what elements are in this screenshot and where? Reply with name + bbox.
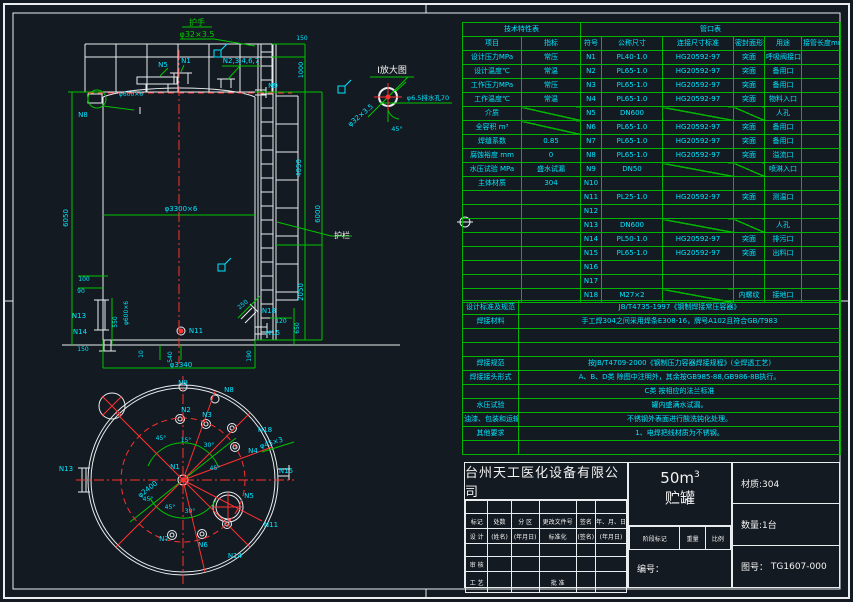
label-150: 150 <box>296 35 308 42</box>
requirement-row <box>463 329 841 343</box>
label-4050: 4050 <box>295 159 303 177</box>
label-1000: 1000 <box>297 62 305 79</box>
label-6000: 6000 <box>314 205 322 223</box>
label-150: 150 <box>77 346 89 353</box>
serial-label: 编号： <box>629 550 731 587</box>
nozzle-row-N11: N11PL25-1.0HG20592-97突面测温口 <box>463 191 841 205</box>
company-name: 台州天工医化设备有限公司 <box>465 463 627 499</box>
label-45°: 45° <box>143 496 154 503</box>
label-45°: 45° <box>156 435 167 442</box>
label-φ3340: φ3340 <box>170 361 192 369</box>
nozzle-n8 <box>88 94 102 103</box>
label-N11: N11 <box>189 327 203 335</box>
tank-elevation-view <box>62 44 400 351</box>
label-2050: 2050 <box>297 283 305 301</box>
label-N14: N14 <box>73 328 88 336</box>
label-φ32×3.5: φ32×3.5 <box>180 30 215 39</box>
requirement-row: 焊接规范按JB/T4709-2000《钢制压力容器焊接规程》(全焊透工艺) <box>463 357 841 371</box>
requirement-row: 其他要求1、电焊把线材质为不锈钢。 <box>463 427 841 441</box>
drawing-number: 图号： TG1607-000 <box>733 546 839 587</box>
label-N4: N4 <box>248 447 258 455</box>
label-Ⅰ放大图: Ⅰ放大图 <box>377 64 407 76</box>
stage-weight-scale-row: 阶段标记重量比例 <box>628 526 732 550</box>
nozzle-row-N5: 介质N5DN600人孔 <box>463 107 841 121</box>
nozzle-row-N10: 主体材质304N10 <box>463 177 841 191</box>
nozzle-row-N3: 工作压力MPa常压N3PL65-1.0HG20592-97突面备用口 <box>463 79 841 93</box>
label-550: 550 <box>112 316 119 328</box>
label-250: 250 <box>236 298 249 311</box>
label-15°: 15° <box>181 437 192 444</box>
plan-nozzles <box>168 383 240 540</box>
cad-drawing-page: { "colors":{"line_green":"#00c400","text… <box>0 0 853 602</box>
label-φ32×3.5: φ32×3.5 <box>346 103 375 129</box>
requirement-row: 焊接接头形式A、B、D类 除图中注明外，其余按GB985-88,GB986-8B… <box>463 371 841 385</box>
label-N5: N5 <box>244 492 254 500</box>
label-10: 10 <box>138 350 145 358</box>
nozzle-row-N12: N12 <box>463 205 841 219</box>
ladder-cage <box>276 96 298 300</box>
requirement-row: 水压试验罐内盛满水试漏。 <box>463 399 841 413</box>
nozzle-row-N15: N15PL65-1.0HG20592-97突面出料口 <box>463 247 841 261</box>
label-45°: 45° <box>210 465 221 472</box>
nozzle-row-N9: 水压试验 MPa盛水试漏N9DN50喷淋入口 <box>463 163 841 177</box>
label-120: 120 <box>275 318 287 325</box>
revision-signature-grid: 标记处数分 区更改文件号签名年、月、日设 计(姓名)(年月日)标准化(签名)(年… <box>464 500 628 588</box>
label-N8: N8 <box>78 111 88 119</box>
label-650: 650 <box>294 322 301 334</box>
nozzle-table-title: 管口表 <box>581 23 841 37</box>
nozzle-row-N4: 工作温度℃常温N4PL65-1.0HG20592-97突面物料入口 <box>463 93 841 107</box>
label-N13: N13 <box>72 312 86 320</box>
label-护手: 护手 <box>189 17 205 27</box>
nozzle-row-N14: N14PL50-1.0HG20592-97突面排污口 <box>463 233 841 247</box>
nozzle-row-N16: N16 <box>463 261 841 275</box>
label-N2: N2 <box>181 406 191 414</box>
label-N18: N18 <box>258 426 272 434</box>
requirement-row <box>463 343 841 357</box>
label-45°: 45° <box>391 125 403 133</box>
weld-symbols <box>214 44 351 271</box>
label-N15: N15 <box>279 467 293 475</box>
tech-table-title: 技术特性表 <box>463 23 581 37</box>
requirement-row: C类 按相应的法兰标准 <box>463 385 841 399</box>
label-N6: N6 <box>198 541 208 549</box>
label-30°: 30° <box>204 442 215 449</box>
product-volume: 50m3 <box>629 469 731 487</box>
label-100: 100 <box>78 276 90 283</box>
label-N7: N7 <box>159 535 169 543</box>
nozzle-row-N6: 全容积 m³N6PL65-1.0HG20592-97突面备用口 <box>463 121 841 135</box>
nozzle-row-N7: 焊缝系数0.85N7PL65-1.0HG20592-97突面备用口 <box>463 135 841 149</box>
requirement-row: 设计标准及规范JB/T4735-1997《钢制焊接常压容器》 <box>463 301 841 315</box>
label-45°: 45° <box>165 504 176 511</box>
requirement-row: 焊接材料手工焊304之间采用焊条E308-16，牌号A102且符合GB/T983 <box>463 315 841 329</box>
label-N9: N9 <box>178 379 188 387</box>
label-φ600×6: φ600×6 <box>123 301 130 325</box>
label-N1: N1 <box>181 57 191 65</box>
nozzle-n13 <box>94 300 109 330</box>
nozzle-row-N17: N17 <box>463 275 841 289</box>
label-30°: 30° <box>185 508 196 515</box>
label-N14: N14 <box>228 552 243 560</box>
label-N8: N8 <box>224 386 234 394</box>
product-name: 贮罐 <box>629 487 731 508</box>
nozzle-row-N13: N13DN600人孔 <box>463 219 841 233</box>
label-6050: 6050 <box>62 209 70 227</box>
nozzle-row-N2: 设计温度℃常温N2PL65-1.0HG20592-97突面备用口 <box>463 65 841 79</box>
label-N18: N18 <box>262 307 276 315</box>
requirement-row: 油漆、包装和运输不锈钢外表面进行酸洗钝化处理。 <box>463 413 841 427</box>
drawing-text-labels: 护手φ32×3.5N5N1N2,3,4,6,7N9N8Ⅰφ600×6Ⅰ放大图φ3… <box>59 17 449 560</box>
label-φ6.5排水孔70: φ6.5排水孔70 <box>407 93 449 102</box>
label-N5: N5 <box>158 61 168 69</box>
label-φ600×6: φ600×6 <box>119 91 143 98</box>
quantity-label: 数量:1台 <box>733 504 839 545</box>
label-190: 190 <box>246 350 253 362</box>
label-N13: N13 <box>59 465 73 473</box>
label-φ45×3: φ45×3 <box>259 436 284 451</box>
requirement-row <box>463 441 841 455</box>
label-护栏: 护栏 <box>334 230 350 240</box>
label-Ⅰ: Ⅰ <box>139 106 142 117</box>
label-N9: N9 <box>268 82 278 90</box>
nozzle-row-N1: 设计压力MPa常压N1PL40-1.0HG20592-97突面呼吸阀接口 <box>463 51 841 65</box>
nozzle-row-N8: 腐蚀裕度 mm0N8PL65-1.0HG20592-97突面溢流口 <box>463 149 841 163</box>
material-label: 材质:304 <box>733 463 839 503</box>
label-N15: N15 <box>266 329 280 337</box>
label-φ3300×6: φ3300×6 <box>165 205 198 213</box>
title-block: 台州天工医化设备有限公司 标记处数分 区更改文件号签名年、月、日设 计(姓名)(… <box>464 462 840 588</box>
nozzle-n11-mark <box>179 329 184 334</box>
label-N11: N11 <box>264 521 278 529</box>
label-90: 90 <box>77 288 85 295</box>
manhole-n5 <box>137 77 177 84</box>
label-N2,3,4,6,7: N2,3,4,6,7 <box>223 57 259 65</box>
label-N3: N3 <box>202 411 212 419</box>
label-N1: N1 <box>170 463 180 471</box>
